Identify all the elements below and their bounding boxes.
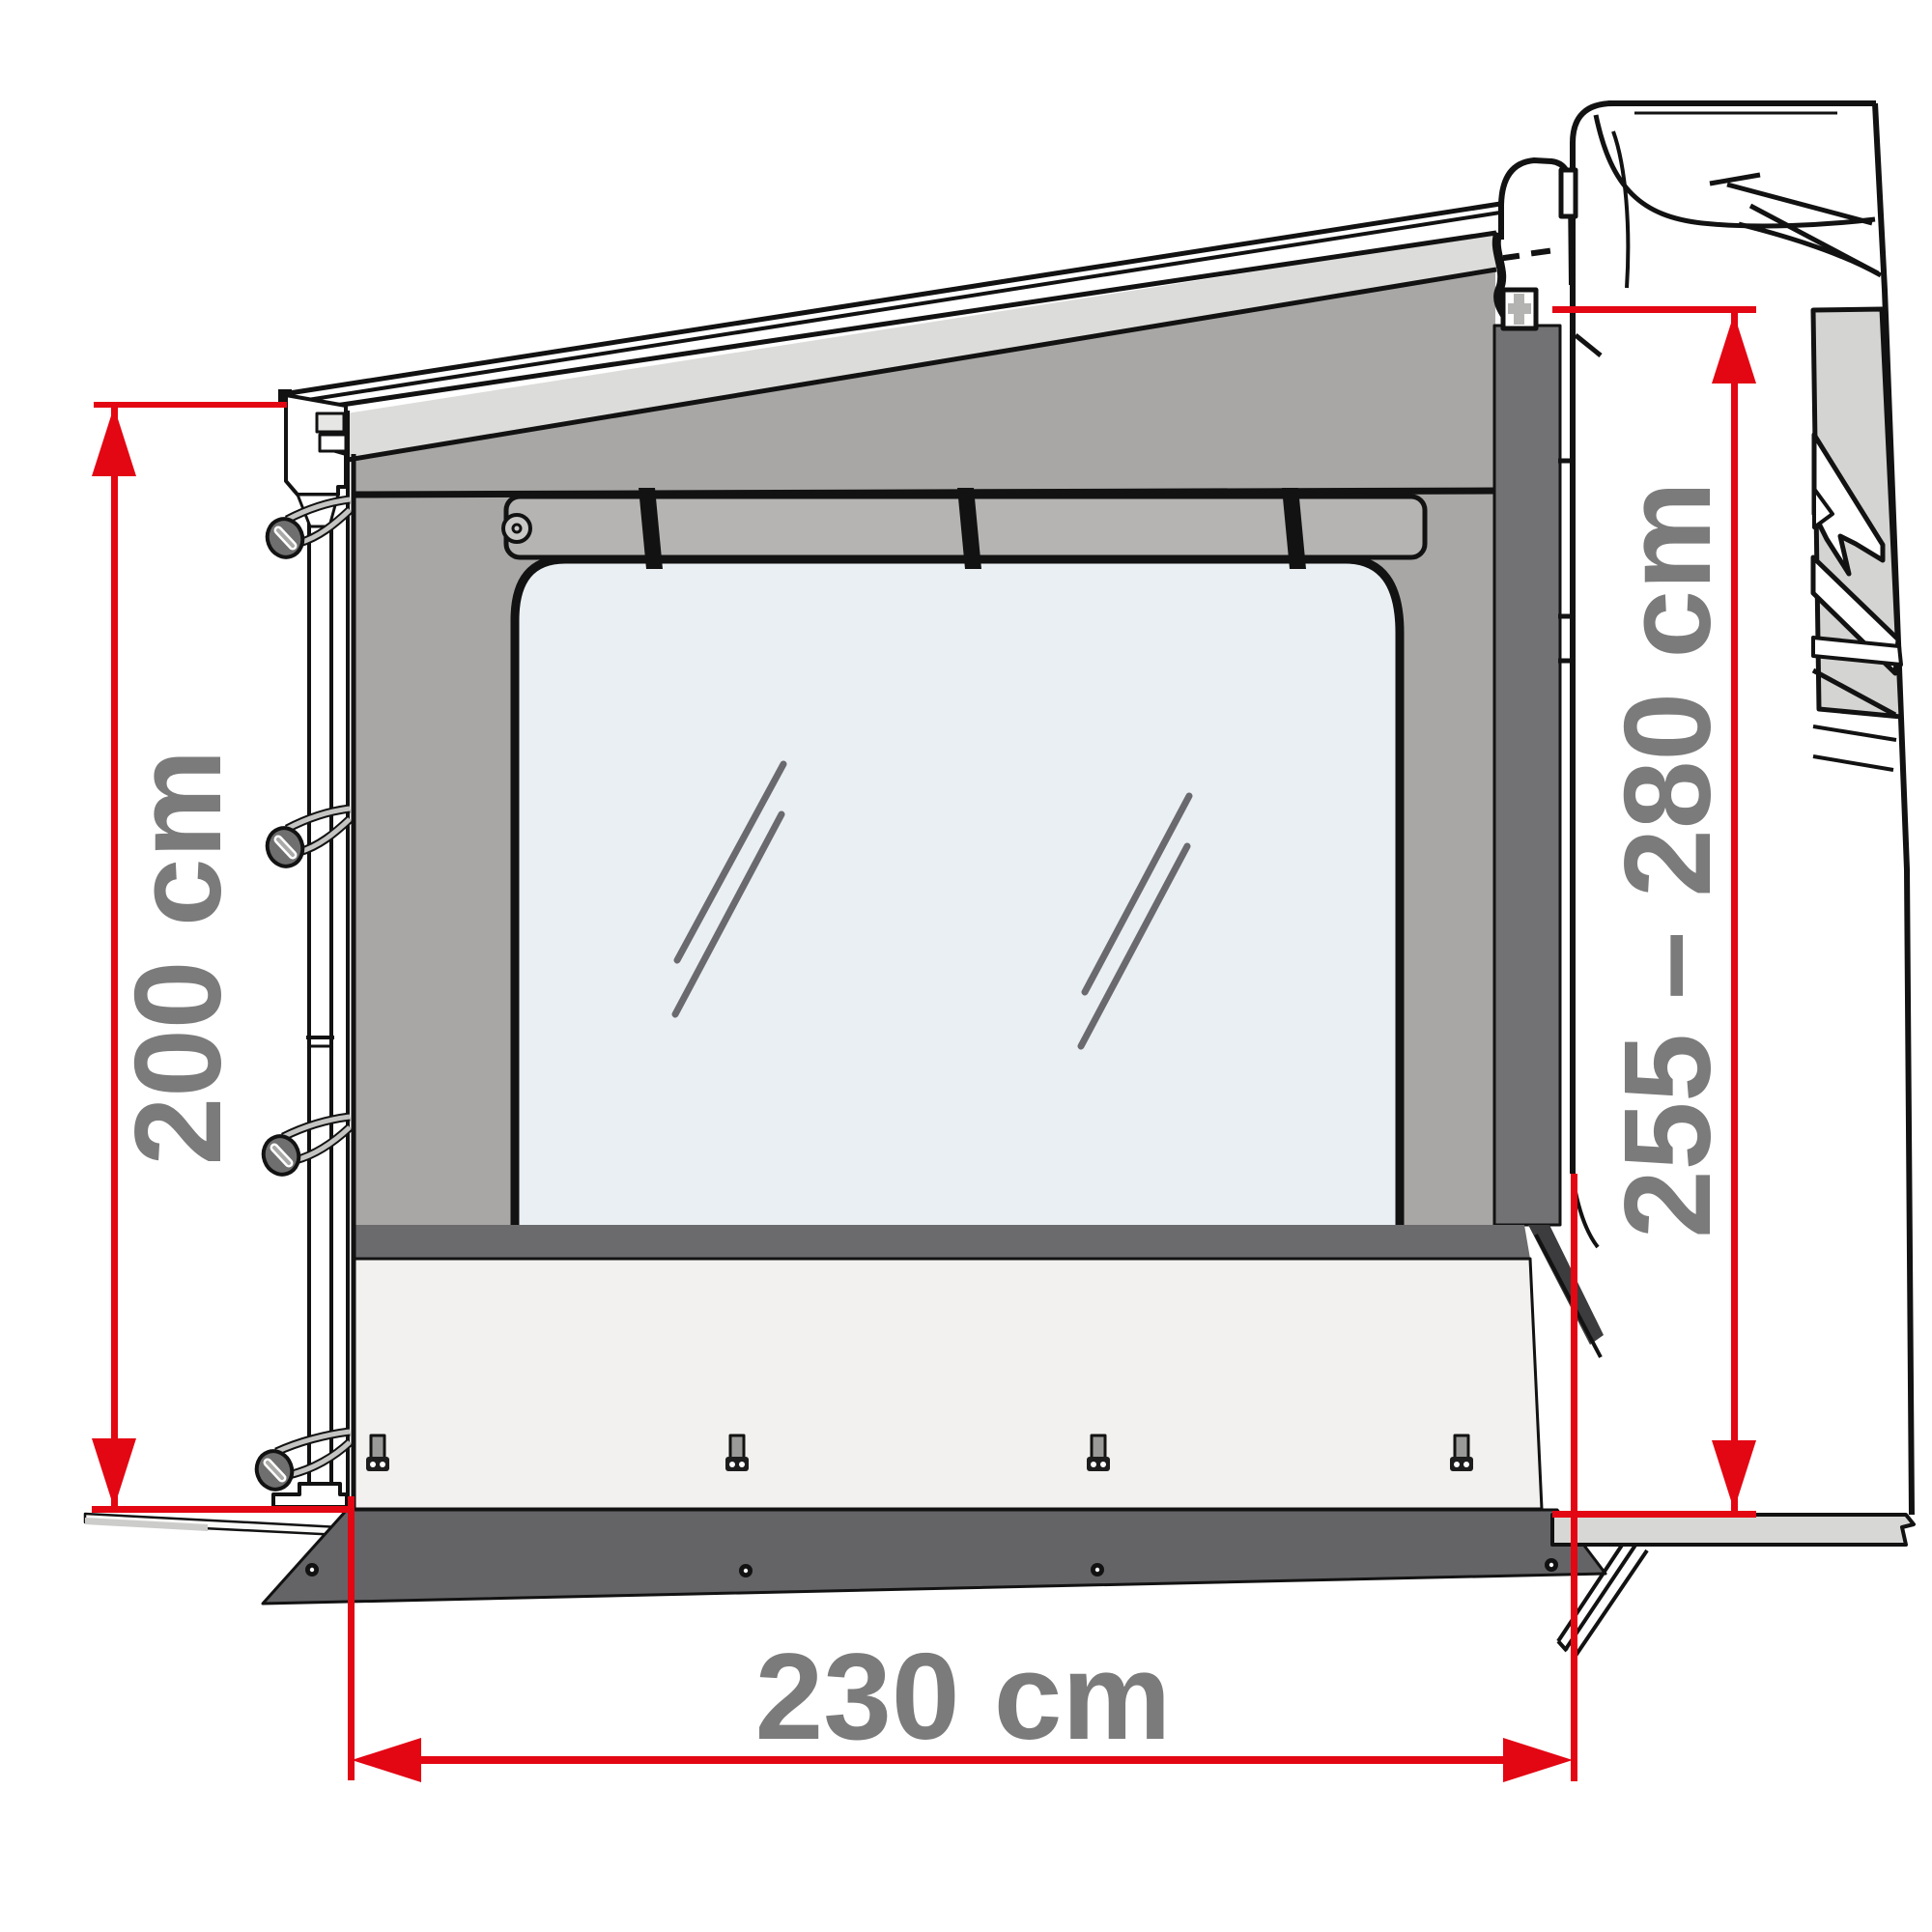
svg-text:255 – 280 cm: 255 – 280 cm — [1599, 481, 1736, 1238]
svg-text:200 cm: 200 cm — [109, 750, 246, 1166]
svg-text:230 cm: 230 cm — [755, 1628, 1172, 1765]
